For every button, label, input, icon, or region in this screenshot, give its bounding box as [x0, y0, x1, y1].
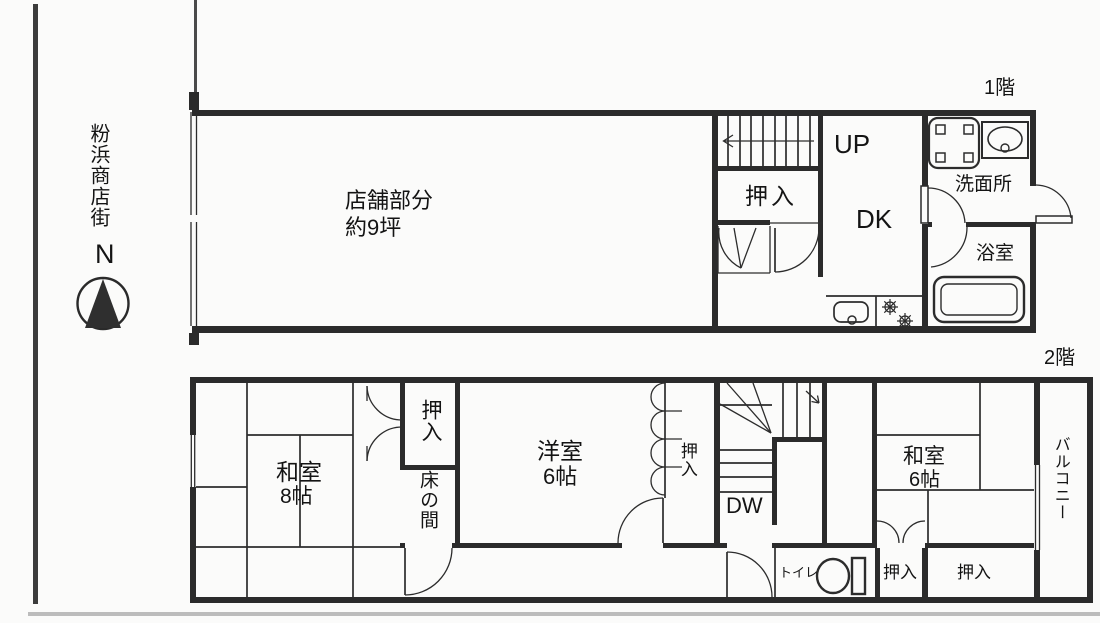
balcony-window: [1036, 465, 1040, 550]
scan-rule: [28, 612, 1100, 616]
entrance-door-arc: [1036, 185, 1072, 223]
compass-north-label: N: [95, 240, 115, 268]
floor2-closet-s1-label: 押入: [883, 564, 917, 582]
floor2-closet-mid-label: 押入: [678, 442, 696, 478]
folding-door: [718, 226, 770, 273]
door-arc: [727, 552, 772, 597]
store-size-label: 約9坪: [345, 216, 401, 239]
street-line: [33, 0, 197, 604]
closet-folding-door: [651, 383, 682, 498]
washbasin-icon: [982, 122, 1028, 158]
floor1-stairs-label: UP: [834, 131, 870, 158]
bathtub-icon: [934, 277, 1024, 322]
bath-label: 浴室: [976, 244, 1014, 264]
double-door-arc: [367, 386, 402, 461]
storefront-window: [191, 112, 197, 326]
yoshitsu-size-label: 6帖: [543, 465, 577, 488]
door-arc: [931, 227, 967, 267]
washitsu6-label: 和室: [903, 446, 945, 468]
tokonoma-label: 床の間: [417, 470, 437, 530]
yoshitsu-label: 洋室: [537, 439, 583, 463]
floor2-closet-ne-label: 押入: [419, 399, 441, 443]
double-door-arc: [877, 521, 925, 543]
store-room-label: 店舗部分: [345, 189, 433, 212]
compass-icon: [78, 278, 129, 329]
washitsu8-label: 和室: [276, 460, 322, 484]
floor1-stairs: [724, 116, 815, 166]
floorplan-canvas: 粉浜商店街 N 1階 店舗部分 約9坪 UP 押入 DK 洗面所 浴室 2階 和…: [0, 0, 1100, 623]
floorplan-drawing: [0, 0, 1100, 623]
stove-icon: [882, 299, 913, 329]
floor2-closet-s2-label: 押入: [957, 564, 991, 582]
street-name-label: 粉浜商店街: [87, 123, 108, 228]
floor2-stairs-label: DW: [726, 494, 763, 517]
washitsu8-size-label: 8帖: [280, 486, 313, 508]
floor1-walls: [189, 92, 1036, 345]
door-arc: [770, 223, 823, 272]
toilet-icon: [817, 558, 865, 594]
toilet-label: トイレ: [779, 566, 818, 580]
balcony-label: バルコニー: [1051, 436, 1068, 521]
washroom-label: 洗面所: [955, 175, 1012, 195]
window-left: [191, 435, 194, 487]
floor1-closet-label: 押入: [745, 184, 797, 208]
floor1-title: 1階: [984, 78, 1015, 99]
floor1-plan: [189, 92, 1072, 345]
door-arc: [618, 498, 663, 543]
floor2-title: 2階: [1044, 348, 1075, 369]
washing-machine-icon: [929, 118, 979, 168]
door-arc: [405, 548, 452, 595]
dk-label: DK: [856, 206, 892, 233]
washitsu6-size-label: 6帖: [909, 470, 940, 491]
